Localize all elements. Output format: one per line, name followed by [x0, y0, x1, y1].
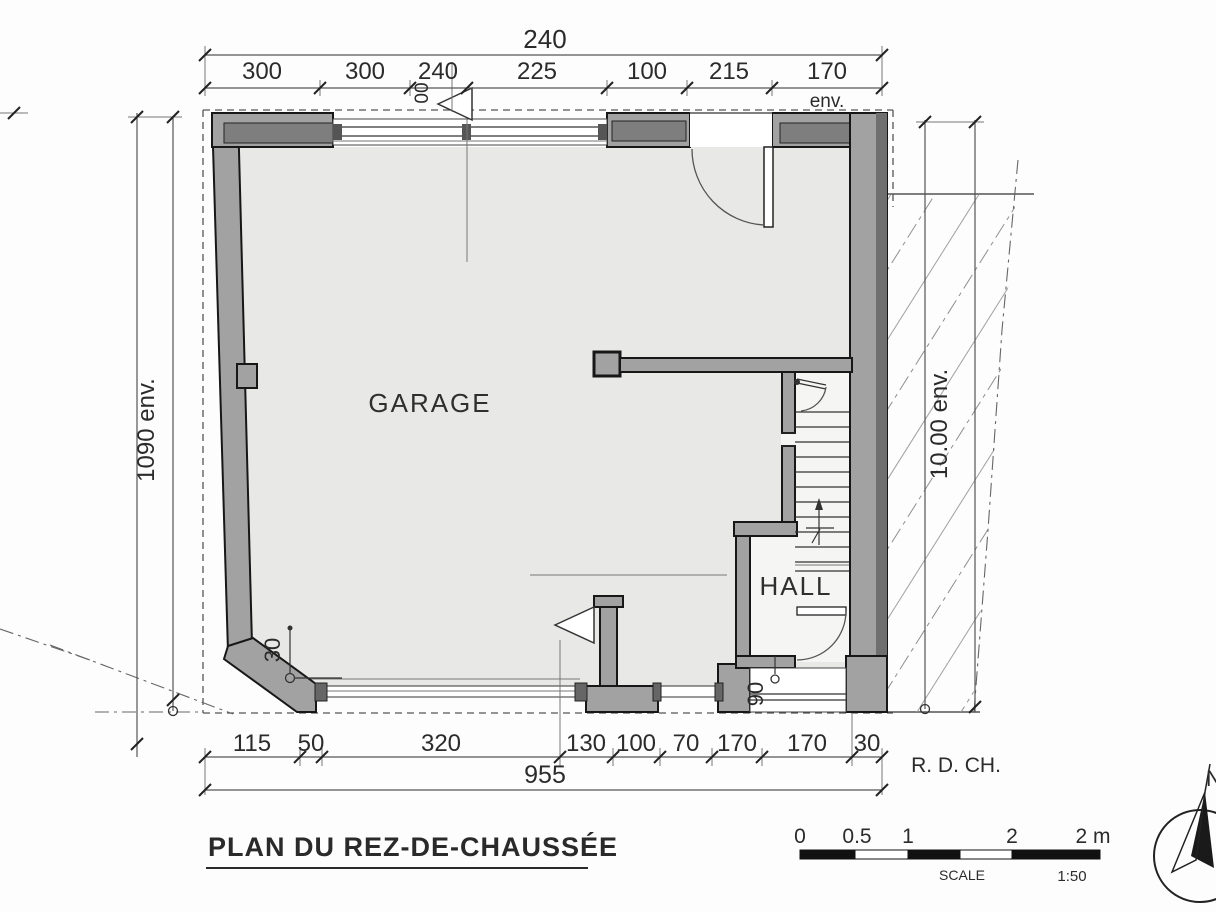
hall-wall-left: [736, 536, 750, 662]
dim-bottom-seg: 130: [566, 730, 606, 757]
dim-top-seg: 100: [627, 58, 667, 85]
garage-label: GARAGE: [368, 388, 491, 418]
left-wall-pilaster: [237, 364, 257, 388]
bottom-opening: [653, 683, 723, 701]
north-arrow-dark: [1191, 792, 1214, 868]
door-leaf: [764, 147, 773, 227]
dim-bottom-seg: 170: [787, 730, 827, 757]
dim-bottom-seg: 100: [616, 730, 656, 757]
scale-caption: SCALE: [939, 867, 985, 883]
dim-bottom-seg: 50: [298, 730, 325, 757]
scale-tick-label: 2 m: [1075, 825, 1110, 848]
hall-wall-bottom: [736, 656, 795, 668]
north-compass: N: [1154, 764, 1216, 902]
partition-wall-h: [620, 358, 852, 372]
hall-wall-jut: [734, 522, 797, 536]
window-mullion: [598, 124, 607, 140]
door-leaf: [797, 607, 846, 615]
scale-tick-label: 0: [794, 825, 806, 848]
dim-bottom-seg: 115: [233, 730, 271, 757]
dim-top-seg: 300: [345, 58, 385, 85]
dimension-right: 10.00 env.: [916, 116, 984, 714]
page-title: PLAN DU REZ-DE-CHAUSSÉE: [208, 831, 618, 862]
dim-top-seg: 215: [709, 58, 749, 85]
floor-fills: [238, 147, 850, 686]
scale-tick-label: 2: [1006, 825, 1018, 848]
dim-left-overall: 1090 env.: [133, 378, 160, 482]
floor-plan-sheet: 240 300 300 240 225 100 215 170 env. 00 …: [0, 0, 1216, 912]
scale-tick-label: 1: [902, 825, 914, 848]
dim-bottom-seg: 320: [421, 730, 461, 757]
terrain-boundary-line: [974, 160, 1018, 712]
plan-title: PLAN DU REZ-DE-CHAUSSÉE: [206, 831, 618, 868]
dim-bottom-seg: 70: [673, 730, 700, 757]
hall-label: HALL: [759, 571, 832, 601]
dim-top-seg: 240: [418, 58, 458, 85]
dim-bottom-overall: 955: [524, 761, 566, 789]
dim-top-overall: 240: [523, 24, 566, 54]
dim-top-approx: env.: [810, 91, 845, 112]
dimension-top: 240 300 300 240 225 100 215 170 env. 00: [199, 24, 888, 112]
scale-tick-label: 0.5: [842, 825, 871, 848]
dim-top-seg: 170: [807, 58, 847, 85]
dim-bottom-seg: 170: [717, 730, 757, 757]
scale-bar: 0 0.5 1 2 2 m SCALE 1:50: [794, 825, 1110, 885]
dim-hall-door: 90: [743, 682, 768, 706]
triangle-marker-top: [438, 88, 472, 120]
garage-door: [315, 683, 587, 701]
bottom-wall-stub: [600, 600, 617, 688]
dim-right-overall: 10.00 env.: [926, 369, 953, 479]
scale-ratio: 1:50: [1057, 868, 1086, 885]
interior-pillar: [594, 352, 620, 376]
dim-top-seg: 300: [242, 58, 282, 85]
high-window: [612, 121, 686, 141]
dim-top-seg: 225: [517, 58, 557, 85]
window-mullion: [333, 124, 342, 140]
dim-chamfer: 30: [260, 638, 285, 662]
stair-wall-v: [782, 372, 795, 529]
dimension-left: 1090 env.: [128, 111, 182, 757]
dim-bottom-seg: 30: [854, 730, 881, 757]
dim-top-small: 00: [412, 82, 433, 103]
rdch-label: R. D. CH.: [911, 754, 1001, 777]
north-label: N: [1206, 766, 1216, 791]
floor-plan-drawing: 240 300 300 240 225 100 215 170 env. 00 …: [0, 0, 1216, 912]
